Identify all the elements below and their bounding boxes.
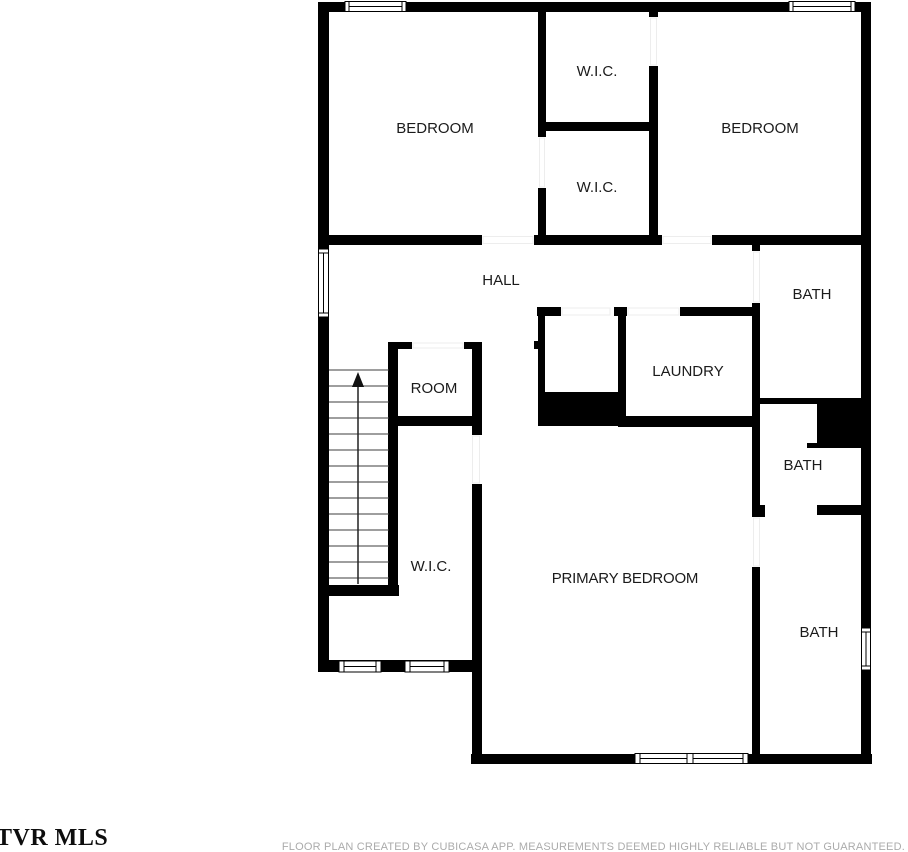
svg-text:ROOM: ROOM — [411, 380, 458, 397]
svg-text:PRIMARY BEDROOM: PRIMARY BEDROOM — [552, 570, 698, 587]
svg-text:FLOOR PLAN CREATED BY CUBICASA: FLOOR PLAN CREATED BY CUBICASA APP. MEAS… — [282, 841, 905, 852]
svg-text:BATH: BATH — [784, 457, 823, 474]
svg-text:BEDROOM: BEDROOM — [721, 120, 799, 137]
svg-text:LAUNDRY: LAUNDRY — [652, 363, 723, 380]
svg-text:W.I.C.: W.I.C. — [577, 179, 618, 196]
svg-text:BEDROOM: BEDROOM — [396, 120, 474, 137]
svg-text:W.I.C.: W.I.C. — [577, 63, 618, 80]
svg-text:HALL: HALL — [482, 272, 520, 289]
svg-text:TVR MLS: TVR MLS — [0, 825, 108, 851]
svg-text:BATH: BATH — [800, 624, 839, 641]
svg-text:W.I.C.: W.I.C. — [411, 558, 452, 575]
svg-text:BATH: BATH — [793, 286, 832, 303]
